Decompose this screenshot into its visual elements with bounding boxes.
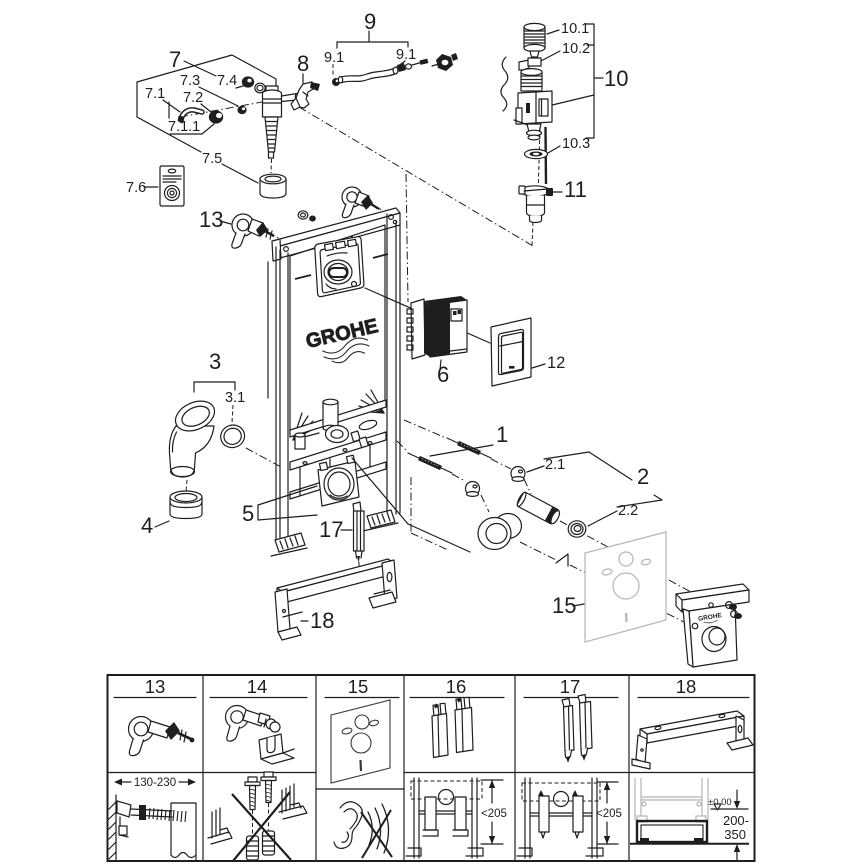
svg-text:2: 2 [637,464,649,489]
svg-text:18: 18 [676,676,697,697]
svg-text:10.1: 10.1 [561,21,589,37]
svg-text:7.2: 7.2 [183,90,203,106]
svg-text:9.1: 9.1 [324,50,344,66]
svg-text:4: 4 [141,513,153,538]
svg-text:13: 13 [145,676,166,697]
svg-text:12: 12 [547,354,565,372]
svg-text:7.5: 7.5 [202,151,222,167]
svg-text:10: 10 [604,66,628,91]
svg-text:7.6: 7.6 [126,180,146,196]
svg-text:5: 5 [242,501,254,526]
svg-text:10.2: 10.2 [562,41,590,57]
svg-text:14: 14 [247,676,268,697]
svg-text:1: 1 [496,422,508,447]
svg-text:6: 6 [437,362,449,387]
svg-text:10.3: 10.3 [562,136,590,152]
svg-text:7.1.1: 7.1.1 [168,119,200,135]
svg-text:15: 15 [348,676,369,697]
svg-text:200-: 200- [723,813,749,828]
svg-text:7.4: 7.4 [217,73,237,89]
svg-text:7.1: 7.1 [145,86,165,102]
svg-text:130-230: 130-230 [134,777,176,789]
svg-text:8: 8 [297,51,309,76]
svg-text:13: 13 [199,207,223,232]
svg-text:17: 17 [319,517,343,542]
svg-text:17: 17 [560,676,581,697]
svg-text:16: 16 [446,676,467,697]
svg-text:3.1: 3.1 [225,390,245,406]
svg-text:2.1: 2.1 [545,457,565,473]
svg-text:350: 350 [724,827,746,842]
svg-text:9: 9 [364,9,376,34]
svg-text:11: 11 [564,177,587,202]
svg-text:7.3: 7.3 [180,73,200,89]
svg-text:18: 18 [310,608,334,633]
svg-text:7: 7 [169,47,181,72]
svg-text:<205: <205 [481,808,507,820]
svg-text:2.2: 2.2 [618,503,638,519]
svg-text:9.1: 9.1 [396,47,416,63]
svg-text:<205: <205 [596,808,622,820]
svg-text:3: 3 [209,349,221,374]
